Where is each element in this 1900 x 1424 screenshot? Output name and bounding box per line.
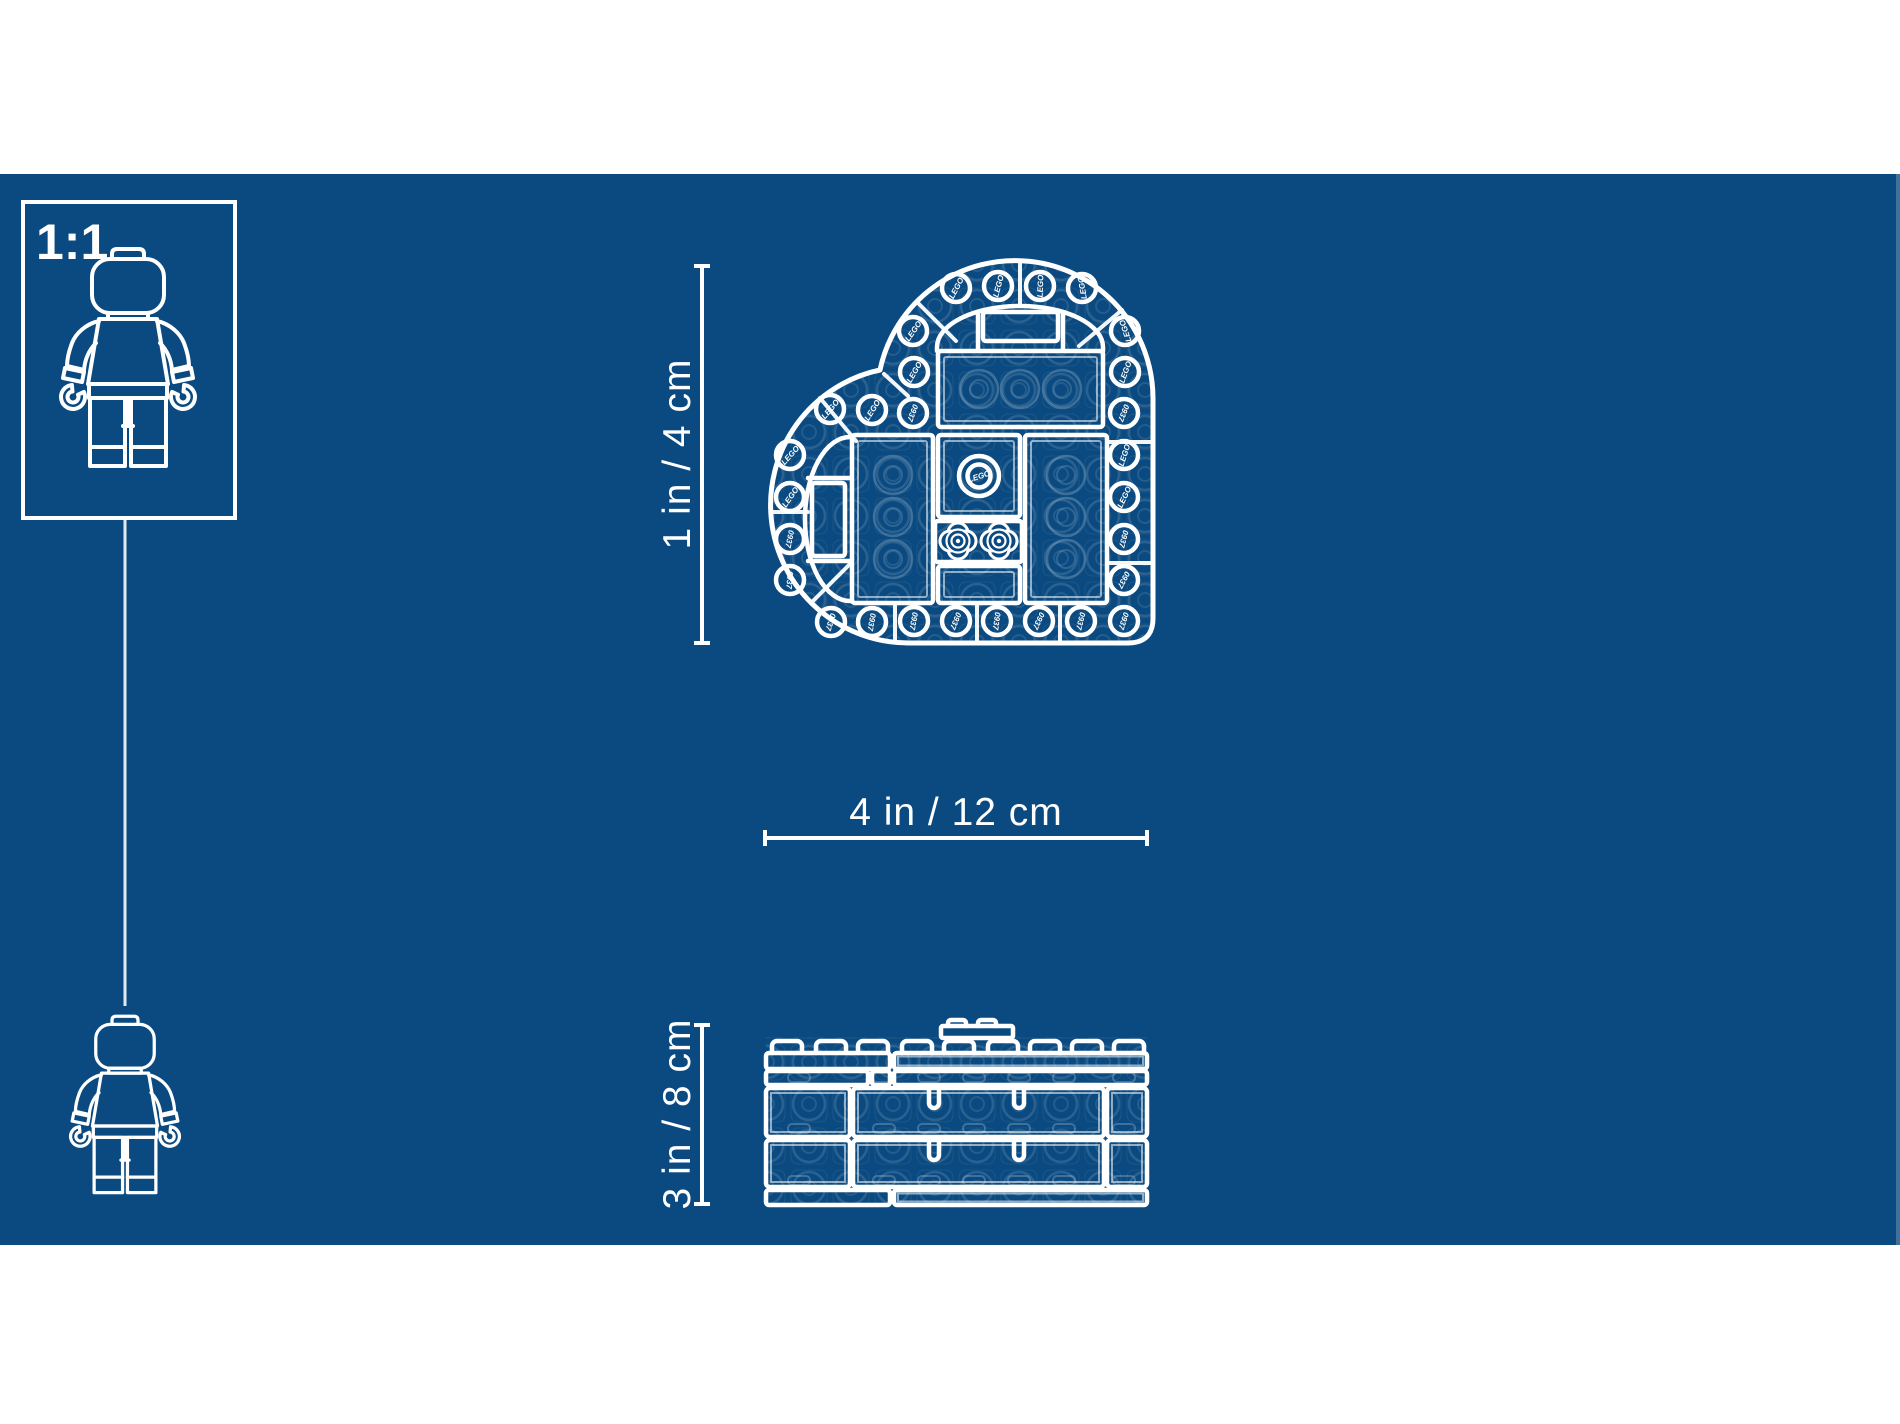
blueprint-page: 1:1 xyxy=(0,0,1900,1424)
side-view-ghost-layer xyxy=(766,1037,1147,1205)
dimension-side-view-height: 3 in / 8 cm xyxy=(656,1019,710,1210)
top-view-height-label: 1 in / 4 cm xyxy=(656,359,699,550)
right-edge-highlight xyxy=(1896,174,1900,1245)
stud-logo-text: 0937 xyxy=(784,571,795,590)
stud-logo-text: LEGO xyxy=(1036,274,1046,298)
top-view-width-label: 4 in / 12 cm xyxy=(849,791,1063,834)
blueprint-figure: 1:1 xyxy=(0,0,1900,1424)
side-view-height-label: 3 in / 8 cm xyxy=(656,1019,699,1210)
heart-box-side-view xyxy=(766,1020,1147,1205)
